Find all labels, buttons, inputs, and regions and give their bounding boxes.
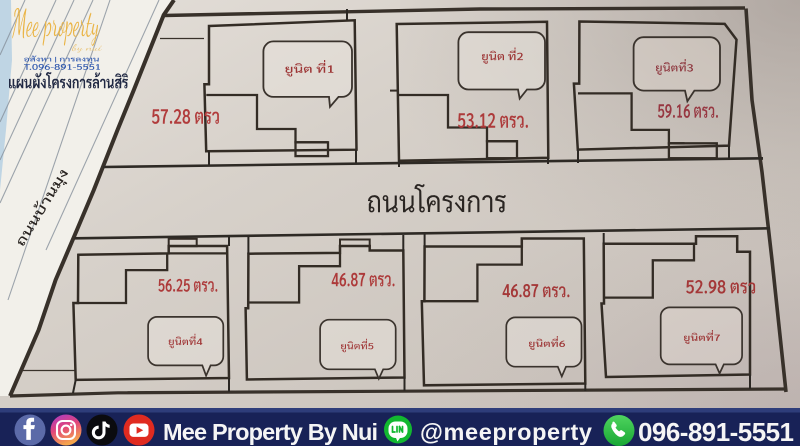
svg-text:096-891-5551: 096-891-5551 (638, 417, 794, 446)
svg-text:@meeproperty: @meeproperty (420, 419, 592, 445)
svg-text:Mee Property By Nui: Mee Property By Nui (163, 419, 378, 445)
